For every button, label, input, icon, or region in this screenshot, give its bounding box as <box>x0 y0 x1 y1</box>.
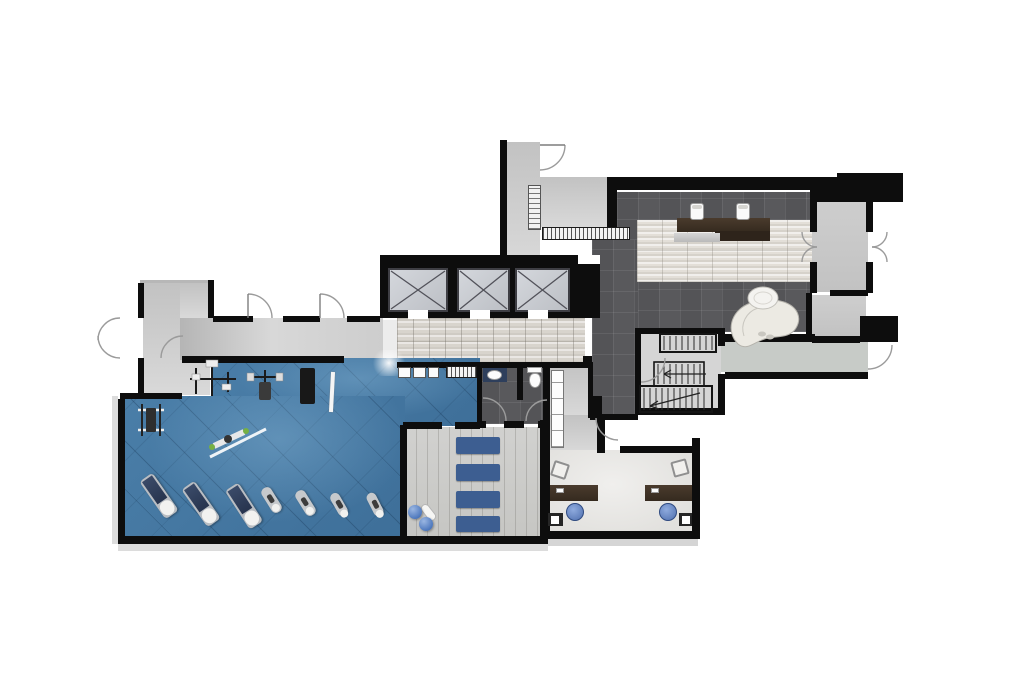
reception-chair-right <box>736 203 750 220</box>
elevator-shaft-2 <box>457 268 510 312</box>
corridor-cabinet-column <box>551 370 564 448</box>
restroom-south-wall-b <box>504 421 524 428</box>
gym-north-wall <box>182 356 344 363</box>
exercise-mat-3 <box>456 491 500 508</box>
cardio-seat <box>300 497 309 507</box>
gym-west-wall <box>118 399 125 539</box>
reception-counter-ledge <box>674 233 720 242</box>
lounge-column-corner-block <box>592 396 602 418</box>
exercise-mat-2 <box>456 464 500 481</box>
elevator-door-gap-3 <box>528 310 548 319</box>
corridor-north-wall-c <box>347 316 380 322</box>
toilet-bowl <box>529 373 541 388</box>
office-cabinet-right <box>679 513 692 526</box>
west-entry-door-arc-lower <box>98 336 120 358</box>
exercise-mat-4 <box>456 516 500 532</box>
studio-north-wall-a <box>403 422 442 429</box>
corridor-north-wall-a <box>213 316 253 322</box>
vestibule-west-wall-upper <box>810 200 817 232</box>
rear-corridor-north-wall <box>725 334 815 342</box>
restroom-west-wall <box>477 366 482 424</box>
cardio-seat <box>335 499 344 509</box>
entry-stub-west-wall-upper <box>138 283 144 318</box>
gym-exterior-strip <box>118 544 548 551</box>
west-entry-door-arc-upper <box>98 318 120 340</box>
small-room-south-wall <box>812 336 860 343</box>
office-corridor-east-wall <box>597 415 605 453</box>
exercise-ball-2 <box>419 517 433 531</box>
weight-bench <box>300 368 315 404</box>
stair-east-wall-upper <box>718 328 725 346</box>
cabinet-door-panel <box>551 516 559 524</box>
lobby-cabinet-2 <box>413 367 426 378</box>
bench-grille-strip <box>446 366 477 378</box>
service-room-west-wall <box>500 140 507 266</box>
gym-south-wall <box>118 536 548 544</box>
entry-stub-west-wall-lower <box>138 358 144 394</box>
northeast-wall-block <box>837 173 903 202</box>
sink-basin <box>487 370 502 380</box>
vestibule-east-wall-lower <box>866 262 873 293</box>
reception-chair-left <box>690 203 704 220</box>
elevator-shaft-3 <box>515 268 570 312</box>
vestibule-east-wall-upper <box>866 200 873 232</box>
shelf-ladder-unit <box>528 185 541 230</box>
gym-northwest-wall <box>120 393 182 399</box>
elevator-bank-notch <box>578 255 600 264</box>
exercise-mat-1 <box>456 437 500 454</box>
floor-plan-canvas <box>0 0 1030 687</box>
corridor-north-wall-b <box>283 316 320 322</box>
task-chair-left <box>566 503 584 521</box>
small-room-west-wall <box>806 293 812 338</box>
east-vestibule-floor <box>812 200 868 292</box>
elevator-shaft-1 <box>388 268 448 312</box>
office-east-wall <box>692 438 700 539</box>
southeast-wall-block <box>860 316 898 342</box>
east-small-room-floor <box>812 295 866 337</box>
east-vestibule-outer-door-arc-lower <box>872 247 887 262</box>
service-room-door-arc <box>540 145 565 170</box>
rear-corridor-south-wall <box>725 372 868 379</box>
west-entry-ext-floor <box>180 283 210 318</box>
service-room-floor-horizontal <box>540 177 607 227</box>
desk-papers-right <box>651 488 659 493</box>
rear-corridor-floor <box>720 342 868 372</box>
studio-west-wall <box>400 425 407 538</box>
stair-east-wall-lower <box>718 374 725 414</box>
office-north-wall <box>620 446 694 453</box>
office-cabinet-left <box>548 513 563 526</box>
corridor-door-arc-1 <box>248 294 272 318</box>
reception-desk-return <box>715 231 770 241</box>
corridor-floor <box>180 318 383 360</box>
reception-desk <box>677 218 770 232</box>
cardio-seat <box>371 499 380 509</box>
lobby-cabinet-3 <box>428 367 439 378</box>
entry-ext-east-wall <box>208 280 214 318</box>
cardio-seat <box>266 494 275 504</box>
lounge-tile-north <box>617 192 812 220</box>
rear-corridor-door-arc <box>868 345 892 369</box>
exercise-ball-1 <box>408 505 422 519</box>
stair-south-wall <box>635 408 725 415</box>
lounge-tile-south <box>638 282 812 332</box>
louver-grille <box>542 227 630 240</box>
stair-north-wall <box>635 328 725 334</box>
office-west-wall <box>540 420 546 539</box>
vestibule-west-wall-lower <box>810 262 817 293</box>
stair-west-wall <box>635 334 641 414</box>
restroom-south-wall-a <box>477 421 486 428</box>
cabinet-door-panel <box>682 516 690 524</box>
corridor-door-arc-2 <box>320 294 344 318</box>
restroom-divider-wall <box>517 368 523 400</box>
elevator-door-gap-1 <box>408 310 428 319</box>
elevator-door-gap-2 <box>470 310 490 319</box>
stairwell-floor <box>639 332 721 412</box>
vestibule-south-wall <box>830 290 868 296</box>
office-exterior-strip <box>548 539 698 546</box>
office-south-wall <box>545 531 698 539</box>
task-chair-right <box>659 503 677 521</box>
desk-papers-left <box>556 488 564 493</box>
east-vestibule-outer-door-arc-upper <box>872 232 887 247</box>
lobby-cabinet-1 <box>398 367 411 378</box>
